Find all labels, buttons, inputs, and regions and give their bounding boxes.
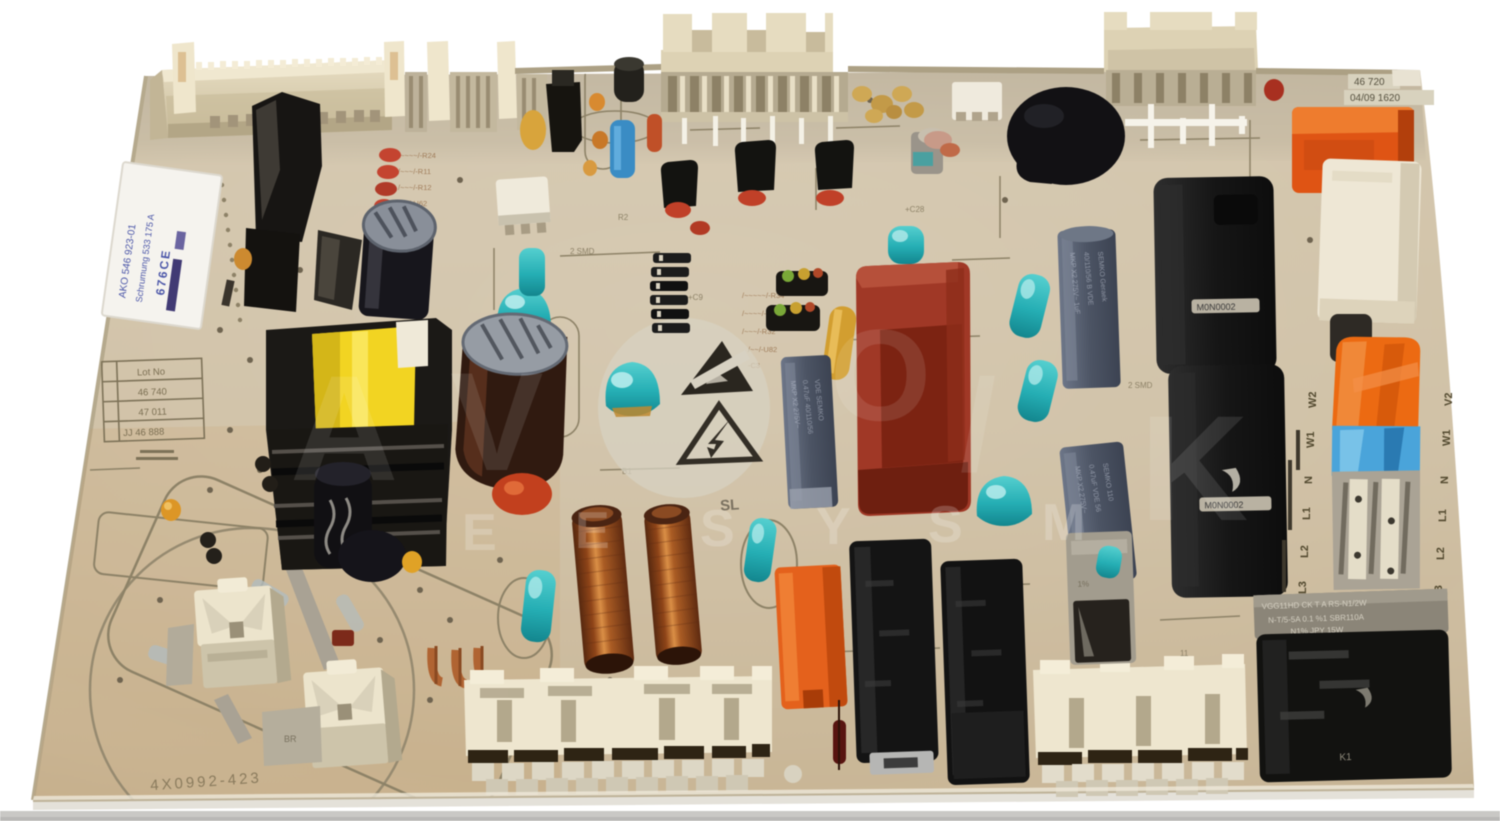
svg-text:L2: L2 [1299,545,1311,558]
svg-text:W1: W1 [1305,432,1317,449]
svg-text:E: E [575,502,610,560]
svg-text:46 720: 46 720 [1354,77,1385,88]
svg-text:47 011: 47 011 [138,407,167,419]
svg-text:M: M [1042,494,1085,552]
svg-text:+C9: +C9 [688,293,703,302]
svg-text:BR: BR [284,734,297,744]
svg-text:R2: R2 [618,213,629,222]
svg-text:JJ 46 888: JJ 46 888 [123,427,165,439]
svg-text:N: N [1303,476,1315,484]
svg-text:L3: L3 [1297,581,1309,594]
svg-text:Y: Y [816,498,851,556]
svg-text:A: A [290,344,398,512]
svg-text:+C28: +C28 [905,205,925,214]
svg-text:L1: L1 [1301,507,1313,520]
svg-text:E: E [462,504,497,562]
svg-text:O: O [830,302,931,448]
svg-text:L1: L1 [1437,509,1449,522]
svg-text:K: K [1140,384,1248,552]
svg-text:M0N0002: M0N0002 [1196,302,1235,313]
svg-text:S: S [928,496,963,554]
svg-text:S: S [700,500,735,558]
svg-text:V2: V2 [1443,393,1455,406]
svg-text:04/09 1620: 04/09 1620 [1350,93,1400,104]
svg-text:K1: K1 [1339,752,1352,763]
svg-text:/: / [960,352,996,498]
svg-text:46 740: 46 740 [138,387,167,399]
svg-text:/~~~/-R12: /~~~/-R12 [398,183,432,192]
svg-text:N: N [1439,476,1451,484]
svg-text:V: V [450,343,543,500]
svg-text:/~~~~/-R24: /~~~~/-R24 [398,151,436,160]
svg-text:/~~/-U82: /~~/-U82 [748,345,777,354]
svg-text:W2: W2 [1307,392,1319,409]
svg-text:Lot No: Lot No [137,367,165,379]
svg-text:/~~~/-R11: /~~~/-R11 [398,167,431,176]
svg-text:1%: 1% [1077,579,1089,588]
svg-text:L2: L2 [1435,547,1447,560]
svg-text:W1: W1 [1441,430,1453,447]
